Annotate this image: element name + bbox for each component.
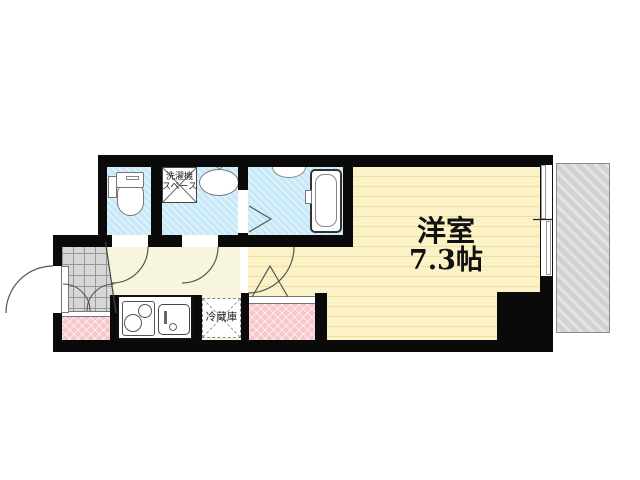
- stove-burner-large: [124, 314, 142, 332]
- sink-faucet: [164, 311, 167, 324]
- sink-drain: [169, 323, 177, 331]
- toilet-tank: [116, 172, 144, 188]
- room-size-label: 7.3帖: [396, 246, 496, 276]
- wall-top: [98, 155, 553, 167]
- window-pane-lower: [546, 221, 551, 275]
- toilet-flush-handle: [126, 176, 139, 180]
- wall-fridge-closet: [241, 293, 249, 352]
- bathroom-door-opening: [238, 190, 248, 233]
- room-door-opening: [240, 247, 248, 293]
- washer-space-label-line2: スペース: [162, 183, 197, 193]
- washbasin: [199, 169, 239, 196]
- wall-kitchen-fridge: [193, 295, 202, 342]
- wall-toilet-washroom: [151, 155, 162, 240]
- fridge-label: 冷蔵庫: [202, 312, 241, 324]
- wall-bottom: [53, 340, 553, 352]
- window-pane-upper: [541, 165, 546, 219]
- floorplan-canvas: 洋室 7.3帖 洗濯機 スペース 冷蔵庫: [0, 0, 640, 480]
- washroom-door-opening: [182, 235, 218, 247]
- wall-bath-room: [343, 155, 353, 247]
- wall-entrance-kitchen: [110, 295, 117, 342]
- room-name-label: 洋室: [396, 216, 496, 248]
- wall-closet-right: [315, 293, 327, 352]
- bathtub-inner: [315, 174, 337, 227]
- entry-door-swing: [6, 266, 53, 313]
- washer-space-label: 洗濯機 スペース: [162, 173, 197, 193]
- bathtub-shelf: [305, 190, 312, 204]
- closet-door-track: [249, 296, 315, 304]
- shoe-cabinet: [62, 317, 111, 340]
- pillar: [497, 292, 545, 343]
- stove-burner-small: [138, 304, 152, 318]
- balcony-area: [556, 163, 610, 333]
- toilet-door-opening: [112, 235, 148, 247]
- wall-left-upper: [98, 155, 107, 247]
- closet: [249, 304, 315, 340]
- entry-door-leaf: [61, 266, 69, 313]
